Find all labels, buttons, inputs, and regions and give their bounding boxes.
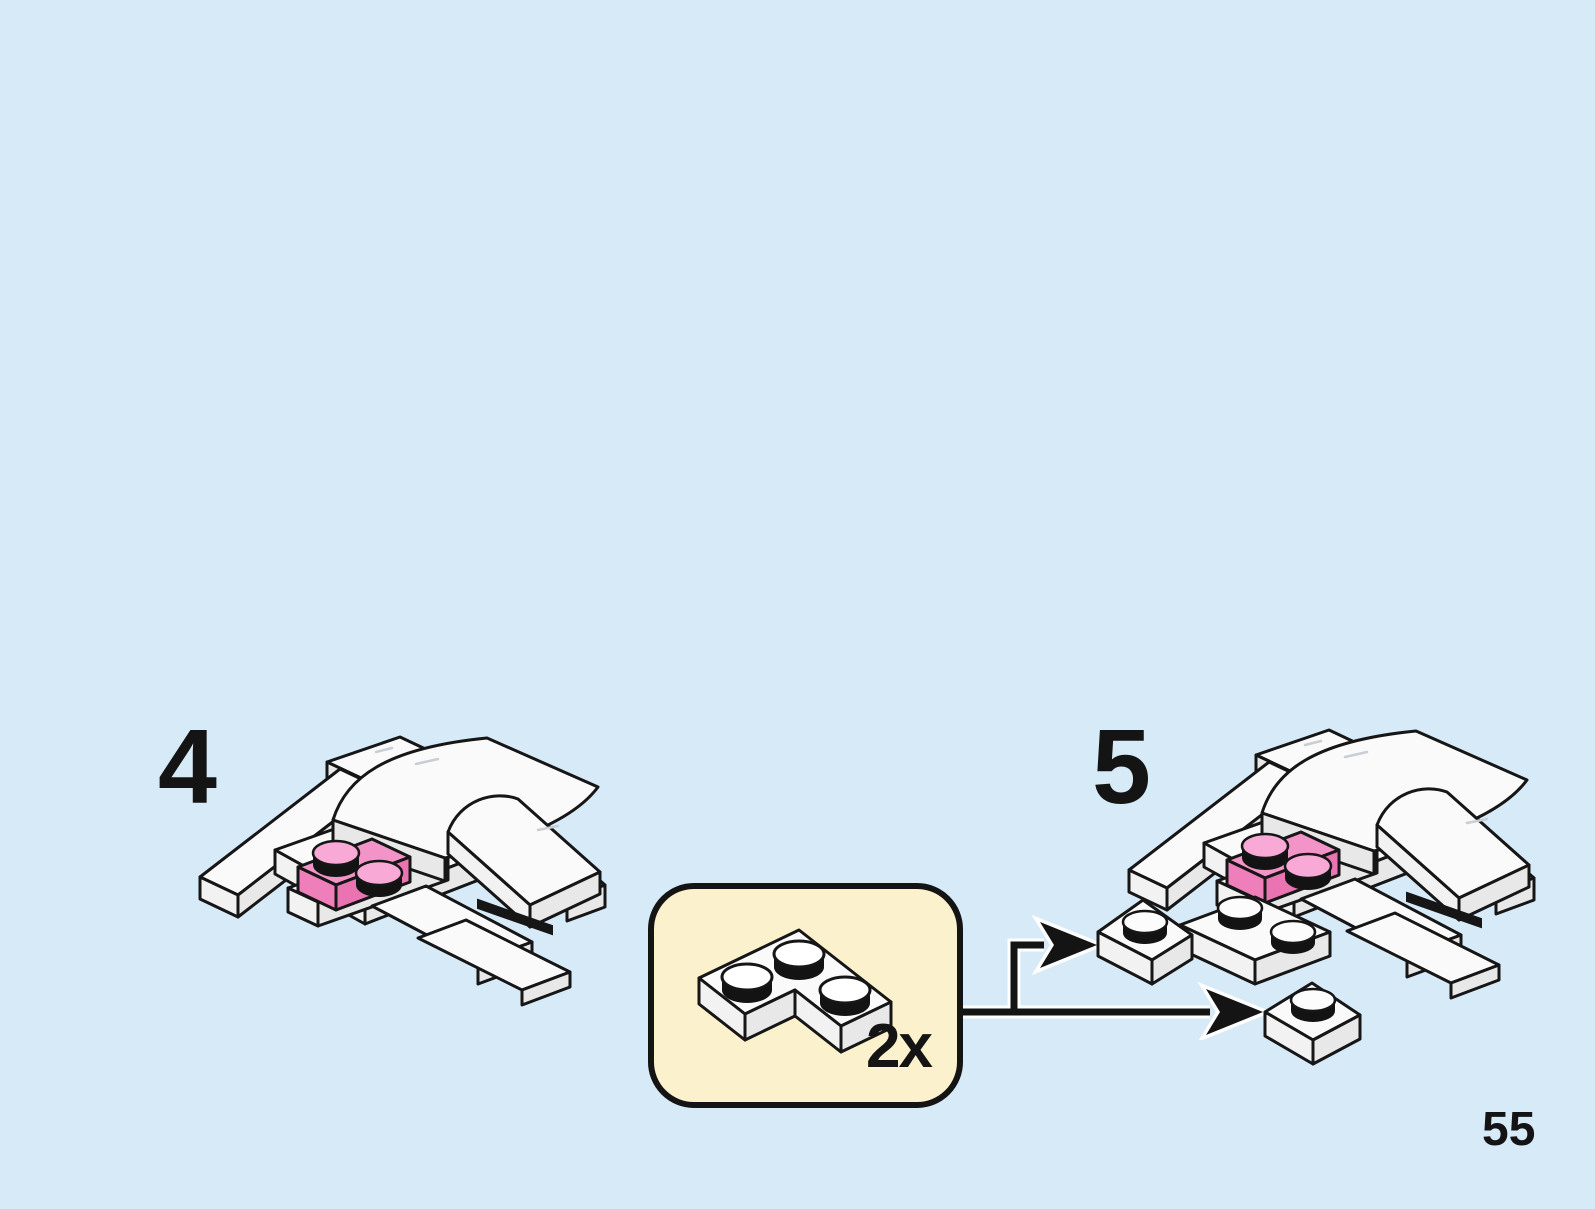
stud [1291,989,1335,1022]
instruction-page: 4 [0,0,1595,1209]
added-corner-plate-front-left [1098,900,1192,984]
parts-callout-box: 2x [648,883,963,1108]
added-corner-plate-front-bottom [1265,983,1360,1064]
step-4-model [180,700,620,1010]
stud [774,941,824,980]
pink-stud [356,861,402,897]
stud [820,977,870,1016]
corner-plate-2x2 [699,930,891,1052]
pink-stud [1242,834,1288,870]
pink-stud [313,841,359,877]
quantity-label: 2x [866,1016,931,1078]
stud [1123,911,1167,944]
stud [722,964,772,1003]
stud [1218,897,1262,930]
pink-stud [1285,854,1331,890]
page-number: 55 [1482,1106,1535,1154]
step-5-model [1070,700,1540,1070]
stud [1271,921,1315,954]
